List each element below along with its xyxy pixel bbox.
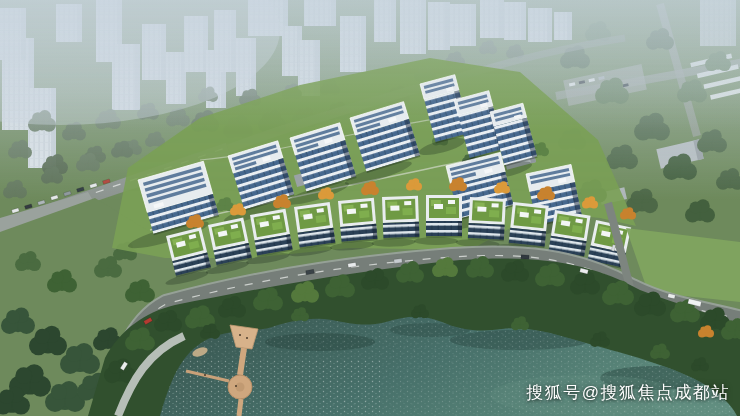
- watermark-text: 搜狐号@搜狐焦点成都站: [526, 381, 730, 404]
- aerial-rendering: 搜狐号@搜狐焦点成都站: [0, 0, 740, 416]
- scene-svg: [0, 0, 740, 416]
- distance-haze: [0, 0, 740, 130]
